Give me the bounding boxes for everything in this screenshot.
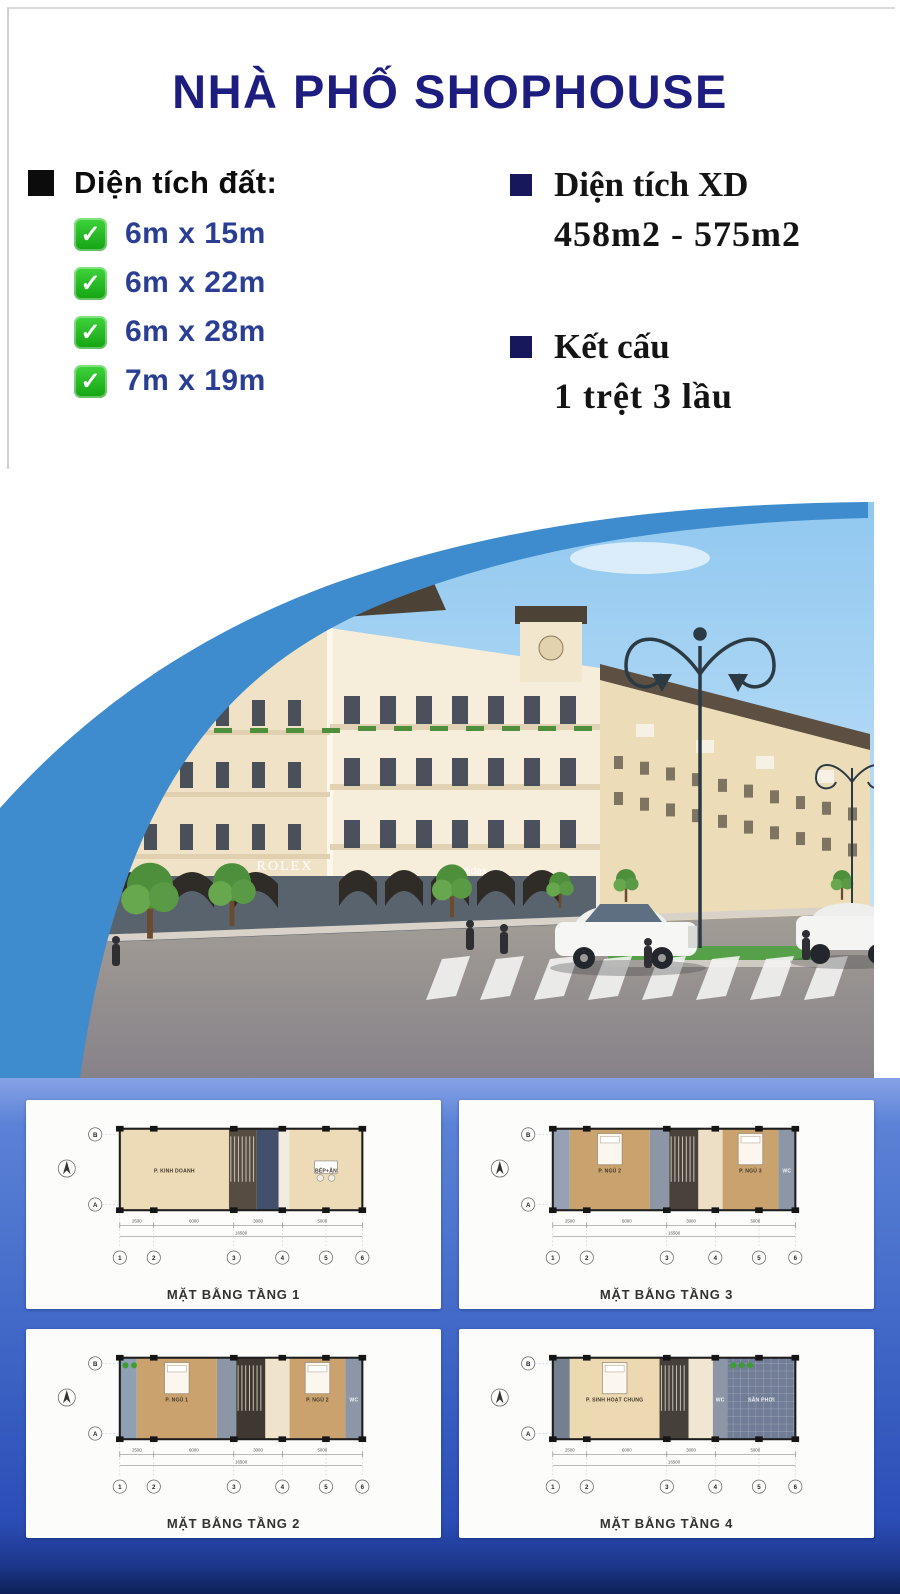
svg-text:1: 1 [551, 1255, 555, 1262]
floorplan-drawing: P. NGỦ 2P. NGỦ 3WC2500600030005000165001… [463, 1106, 870, 1286]
svg-text:5000: 5000 [750, 1219, 760, 1224]
svg-text:3000: 3000 [253, 1219, 263, 1224]
plan-caption: MẶT BẰNG TẦNG 1 [30, 1286, 437, 1306]
svg-text:6000: 6000 [189, 1448, 199, 1453]
check-icon: ✓ [74, 218, 107, 251]
svg-text:4: 4 [714, 1255, 718, 1262]
plan-caption: MẶT BẰNG TẦNG 3 [463, 1286, 870, 1306]
svg-text:5000: 5000 [317, 1448, 327, 1453]
build-area-label: Diện tích XD [554, 165, 748, 205]
svg-text:P. NGỦ 1: P. NGỦ 1 [165, 1396, 188, 1403]
svg-text:WC: WC [349, 1397, 358, 1403]
list-item: ✓ 6m x 15m [74, 217, 478, 251]
svg-text:P. KINH DOANH: P. KINH DOANH [154, 1168, 195, 1174]
svg-text:1: 1 [118, 1255, 122, 1262]
lot-size: 7m x 19m [125, 364, 266, 398]
square-bullet-icon [510, 336, 532, 358]
svg-text:2500: 2500 [132, 1448, 142, 1453]
svg-text:P. NGỦ 3: P. NGỦ 3 [739, 1167, 762, 1174]
svg-text:2500: 2500 [132, 1219, 142, 1224]
project-rendering-image: ROLEX adidas [0, 478, 900, 1078]
svg-text:4: 4 [281, 1255, 285, 1262]
svg-text:6: 6 [794, 1484, 798, 1491]
page-title: NHÀ PHỐ SHOPHOUSE [0, 64, 900, 119]
square-bullet-icon [28, 170, 54, 196]
svg-text:6: 6 [361, 1255, 365, 1262]
svg-text:3000: 3000 [686, 1219, 696, 1224]
svg-text:BẾP+ĂN: BẾP+ĂN [315, 1167, 337, 1174]
svg-text:B: B [526, 1132, 531, 1139]
svg-text:B: B [526, 1361, 531, 1368]
svg-text:P. NGỦ 2: P. NGỦ 2 [306, 1396, 329, 1403]
land-area-block: Diện tích đất: ✓ 6m x 15m ✓ 6m x 22m ✓ 6… [28, 165, 478, 417]
svg-text:16500: 16500 [235, 1230, 248, 1235]
svg-text:2: 2 [585, 1484, 589, 1491]
list-item: ✓ 7m x 19m [74, 364, 478, 398]
svg-text:3000: 3000 [253, 1448, 263, 1453]
svg-text:6000: 6000 [622, 1219, 632, 1224]
build-spec-block: Diện tích XD 458m2 - 575m2 Kết cấu 1 trệ… [478, 165, 872, 417]
svg-text:3: 3 [232, 1484, 236, 1491]
floorplan-card-tang-4: P. SINH HOẠT CHUNGWCSÂN PHƠI250060003000… [459, 1329, 874, 1538]
floorplan-drawing: P. NGỦ 1P. NGỦ 2WC2500600030005000165001… [30, 1335, 437, 1515]
floorplan-grid: P. KINH DOANHBẾP+ĂN250060003000500016500… [0, 1078, 900, 1594]
svg-text:16500: 16500 [668, 1230, 681, 1235]
white-margin-right [874, 478, 900, 1078]
svg-text:5: 5 [324, 1255, 328, 1262]
build-area-value: 458m2 - 575m2 [554, 213, 872, 255]
svg-text:4: 4 [714, 1484, 718, 1491]
svg-text:1: 1 [551, 1484, 555, 1491]
street-scene: ROLEX adidas [0, 478, 900, 1078]
svg-text:P. NGỦ 2: P. NGỦ 2 [598, 1167, 621, 1174]
list-item: ✓ 6m x 28m [74, 315, 478, 349]
lot-size: 6m x 28m [125, 315, 266, 349]
header: NHÀ PHỐ SHOPHOUSE [0, 0, 900, 119]
svg-text:2500: 2500 [565, 1219, 575, 1224]
svg-text:A: A [526, 1202, 531, 1209]
svg-text:P. SINH HOẠT CHUNG: P. SINH HOẠT CHUNG [586, 1397, 643, 1403]
svg-text:3: 3 [665, 1255, 669, 1262]
plan-caption: MẶT BẰNG TẦNG 2 [30, 1515, 437, 1535]
svg-text:B: B [93, 1132, 98, 1139]
svg-text:WC: WC [782, 1168, 791, 1174]
svg-text:SÂN PHƠI: SÂN PHƠI [748, 1396, 775, 1403]
land-area-label: Diện tích đất: [74, 165, 277, 201]
check-icon: ✓ [74, 365, 107, 398]
svg-text:5000: 5000 [317, 1219, 327, 1224]
svg-text:6000: 6000 [189, 1219, 199, 1224]
floorplan-card-tang-1: P. KINH DOANHBẾP+ĂN250060003000500016500… [26, 1100, 441, 1309]
svg-text:2: 2 [585, 1255, 589, 1262]
structure-value: 1 trệt 3 lầu [554, 375, 872, 417]
svg-text:A: A [93, 1202, 98, 1209]
svg-text:5: 5 [757, 1255, 761, 1262]
svg-text:5: 5 [757, 1484, 761, 1491]
structure-label: Kết cấu [554, 327, 670, 367]
plan-caption: MẶT BẰNG TẦNG 4 [463, 1515, 870, 1535]
svg-text:3: 3 [665, 1484, 669, 1491]
svg-text:16500: 16500 [668, 1459, 681, 1464]
svg-text:5: 5 [324, 1484, 328, 1491]
svg-text:5000: 5000 [750, 1448, 760, 1453]
floorplan-card-tang-2: P. NGỦ 1P. NGỦ 2WC2500600030005000165001… [26, 1329, 441, 1538]
svg-text:2: 2 [152, 1255, 156, 1262]
street [0, 908, 900, 1078]
svg-text:16500: 16500 [235, 1459, 248, 1464]
floorplan-drawing: P. KINH DOANHBẾP+ĂN250060003000500016500… [30, 1106, 437, 1286]
svg-text:4: 4 [281, 1484, 285, 1491]
svg-text:1: 1 [118, 1484, 122, 1491]
check-icon: ✓ [74, 267, 107, 300]
svg-text:6: 6 [361, 1484, 365, 1491]
svg-text:A: A [93, 1431, 98, 1438]
svg-text:2: 2 [152, 1484, 156, 1491]
svg-text:3000: 3000 [686, 1448, 696, 1453]
flyer-page: NHÀ PHỐ SHOPHOUSE Diện tích đất: ✓ 6m x … [0, 0, 900, 1594]
svg-text:A: A [526, 1431, 531, 1438]
check-icon: ✓ [74, 316, 107, 349]
storefront-sign-rolex: ROLEX [257, 859, 314, 874]
lot-size: 6m x 15m [125, 217, 266, 251]
svg-text:6000: 6000 [622, 1448, 632, 1453]
svg-text:2500: 2500 [565, 1448, 575, 1453]
floorplan-card-tang-3: P. NGỦ 2P. NGỦ 3WC2500600030005000165001… [459, 1100, 874, 1309]
list-item: ✓ 6m x 22m [74, 266, 478, 300]
floorplan-drawing: P. SINH HOẠT CHUNGWCSÂN PHƠI250060003000… [463, 1335, 870, 1515]
svg-text:B: B [93, 1361, 98, 1368]
lot-size: 6m x 22m [125, 266, 266, 300]
svg-text:6: 6 [794, 1255, 798, 1262]
square-bullet-icon [510, 174, 532, 196]
spec-section: Diện tích đất: ✓ 6m x 15m ✓ 6m x 22m ✓ 6… [0, 165, 900, 417]
svg-text:3: 3 [232, 1255, 236, 1262]
svg-text:WC: WC [716, 1397, 725, 1403]
